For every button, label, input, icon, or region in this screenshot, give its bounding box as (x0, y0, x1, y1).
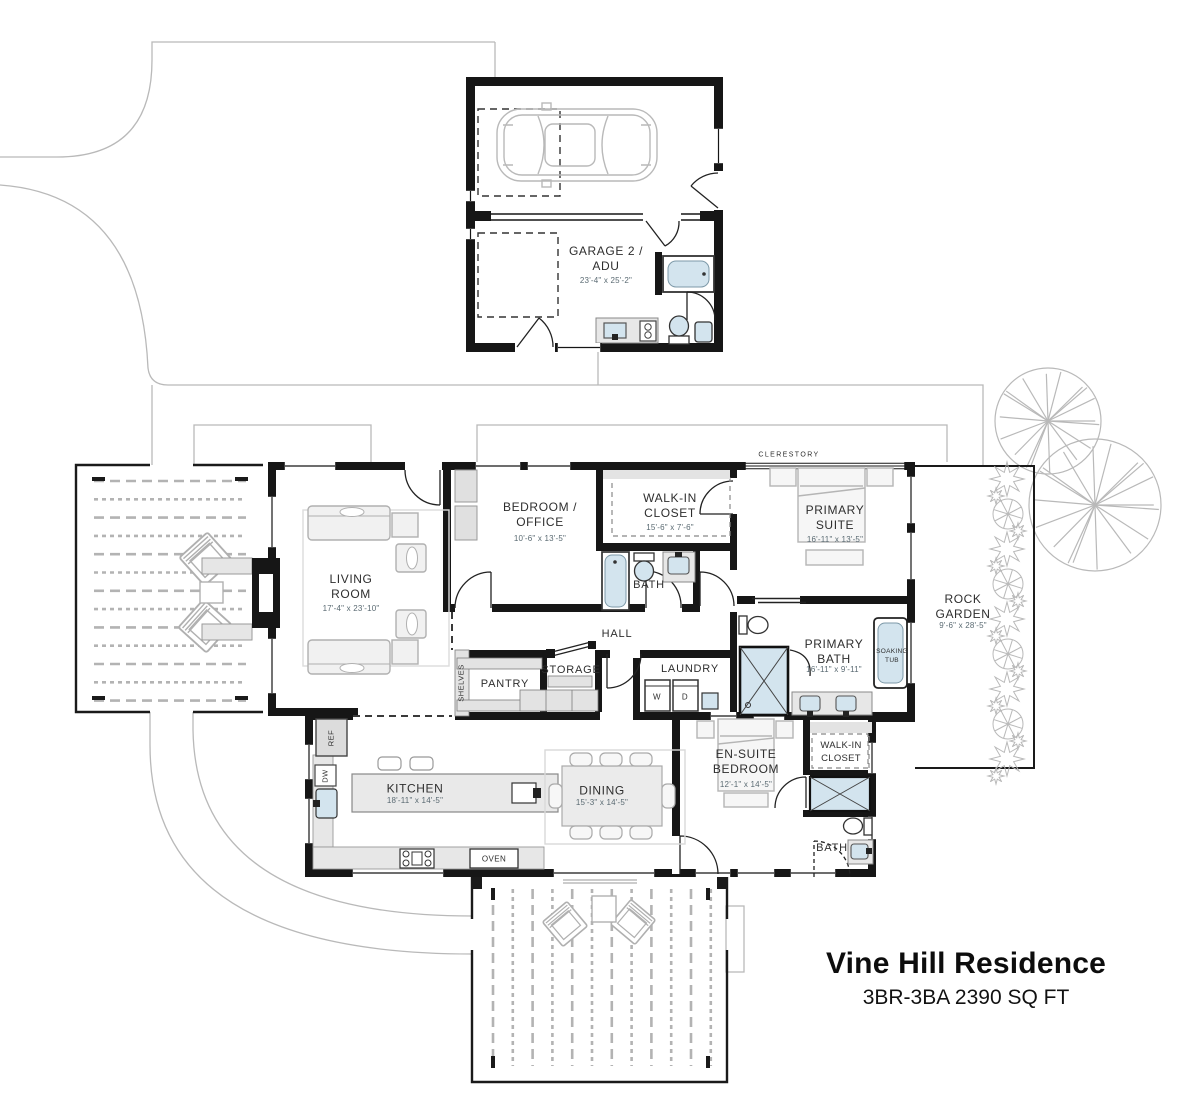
bath2-fixtures (810, 777, 873, 864)
window-glyph (907, 532, 915, 580)
living-furniture (303, 506, 449, 674)
window-glyph (305, 744, 313, 780)
bottom-deck (472, 877, 727, 1082)
adu-door-gap (643, 210, 681, 221)
eave-line-right (477, 425, 947, 462)
side-table (392, 640, 418, 664)
closet1-door (700, 481, 733, 514)
closet2-shelf-band (810, 722, 872, 733)
nightstand (867, 468, 893, 486)
trees (995, 368, 1161, 571)
toilet-icon (669, 316, 689, 344)
floor-plan: GARAGE 2 / ADU 23'-4" x 25'-2" LIVING RO… (0, 0, 1200, 1100)
dining-furniture (545, 750, 685, 844)
main-house (252, 128, 915, 877)
adu-entry-door (517, 318, 553, 347)
nightstand (776, 721, 793, 738)
garage-building (466, 77, 723, 352)
storage-door (552, 642, 591, 656)
bench (724, 793, 768, 807)
nightstand (697, 721, 714, 738)
window-glyph (466, 228, 475, 240)
bedroom-closet (455, 470, 477, 540)
fireplace-icon (252, 558, 280, 628)
window-glyph (553, 869, 655, 877)
cooktop (400, 849, 434, 868)
window-glyph (284, 462, 336, 470)
side-table (392, 513, 418, 537)
window-glyph (475, 462, 521, 470)
laundry-sink (702, 693, 718, 709)
left-deck (76, 465, 263, 712)
closet1-shelf-band (603, 470, 730, 479)
toilet-icon (739, 616, 768, 634)
shower (810, 777, 870, 811)
bench (806, 550, 863, 565)
suite-door (700, 572, 734, 606)
stool (410, 757, 433, 770)
window-glyph (907, 622, 915, 684)
oven-box (470, 849, 518, 868)
door-threshold (563, 880, 637, 883)
car-icon (497, 103, 657, 187)
window-glyph (466, 190, 475, 202)
garage-side-door (691, 173, 718, 208)
dishwasher (315, 765, 336, 786)
adu-door (646, 221, 679, 246)
bed (718, 719, 774, 791)
rock-garden (915, 462, 1034, 784)
shower2-door (775, 777, 806, 808)
road-curb-inner (0, 185, 983, 466)
island-sink (512, 783, 536, 803)
patio-chair-icon (542, 896, 655, 947)
ensuite-door (680, 836, 718, 874)
window-glyph (714, 128, 723, 164)
dining-table (562, 766, 662, 826)
laundry-fixtures (645, 680, 718, 711)
deck-corner-ticks (92, 477, 248, 700)
window-glyph (268, 638, 276, 694)
toilet-icon (634, 553, 654, 581)
window-glyph (305, 798, 313, 844)
pantry-shelving (455, 650, 598, 716)
road-curb-outer (0, 42, 495, 157)
primary-bath-fixtures (739, 616, 907, 717)
window-glyph (737, 869, 775, 877)
window-glyph (527, 462, 571, 470)
floor-plan-drawing (0, 0, 1200, 1100)
window-glyph (268, 496, 276, 548)
shower1-door (790, 650, 810, 676)
dryer-box (673, 680, 698, 711)
bed (798, 468, 865, 542)
side-landing (726, 906, 744, 972)
pocket-door (752, 596, 806, 604)
bath-door (687, 292, 715, 320)
toilet-icon (844, 818, 873, 835)
washer-box (645, 680, 670, 711)
stool (378, 757, 401, 770)
shower (740, 647, 788, 715)
window-glyph (695, 869, 731, 877)
window-glyph (557, 343, 601, 352)
sink (695, 322, 712, 342)
plants-strip (988, 462, 1026, 784)
nightstand (770, 468, 796, 486)
refrigerator (316, 719, 347, 756)
kitchen-fixtures (313, 719, 558, 869)
deck-enclosure (76, 465, 263, 712)
bedroom-door (455, 572, 491, 608)
entry-door (405, 470, 440, 505)
primary-suite-furniture (770, 468, 893, 565)
window-glyph (352, 869, 444, 877)
soaking-tub (874, 618, 907, 688)
window-glyph (907, 476, 915, 524)
window-glyph (790, 869, 836, 877)
eave-line-left (194, 425, 371, 465)
